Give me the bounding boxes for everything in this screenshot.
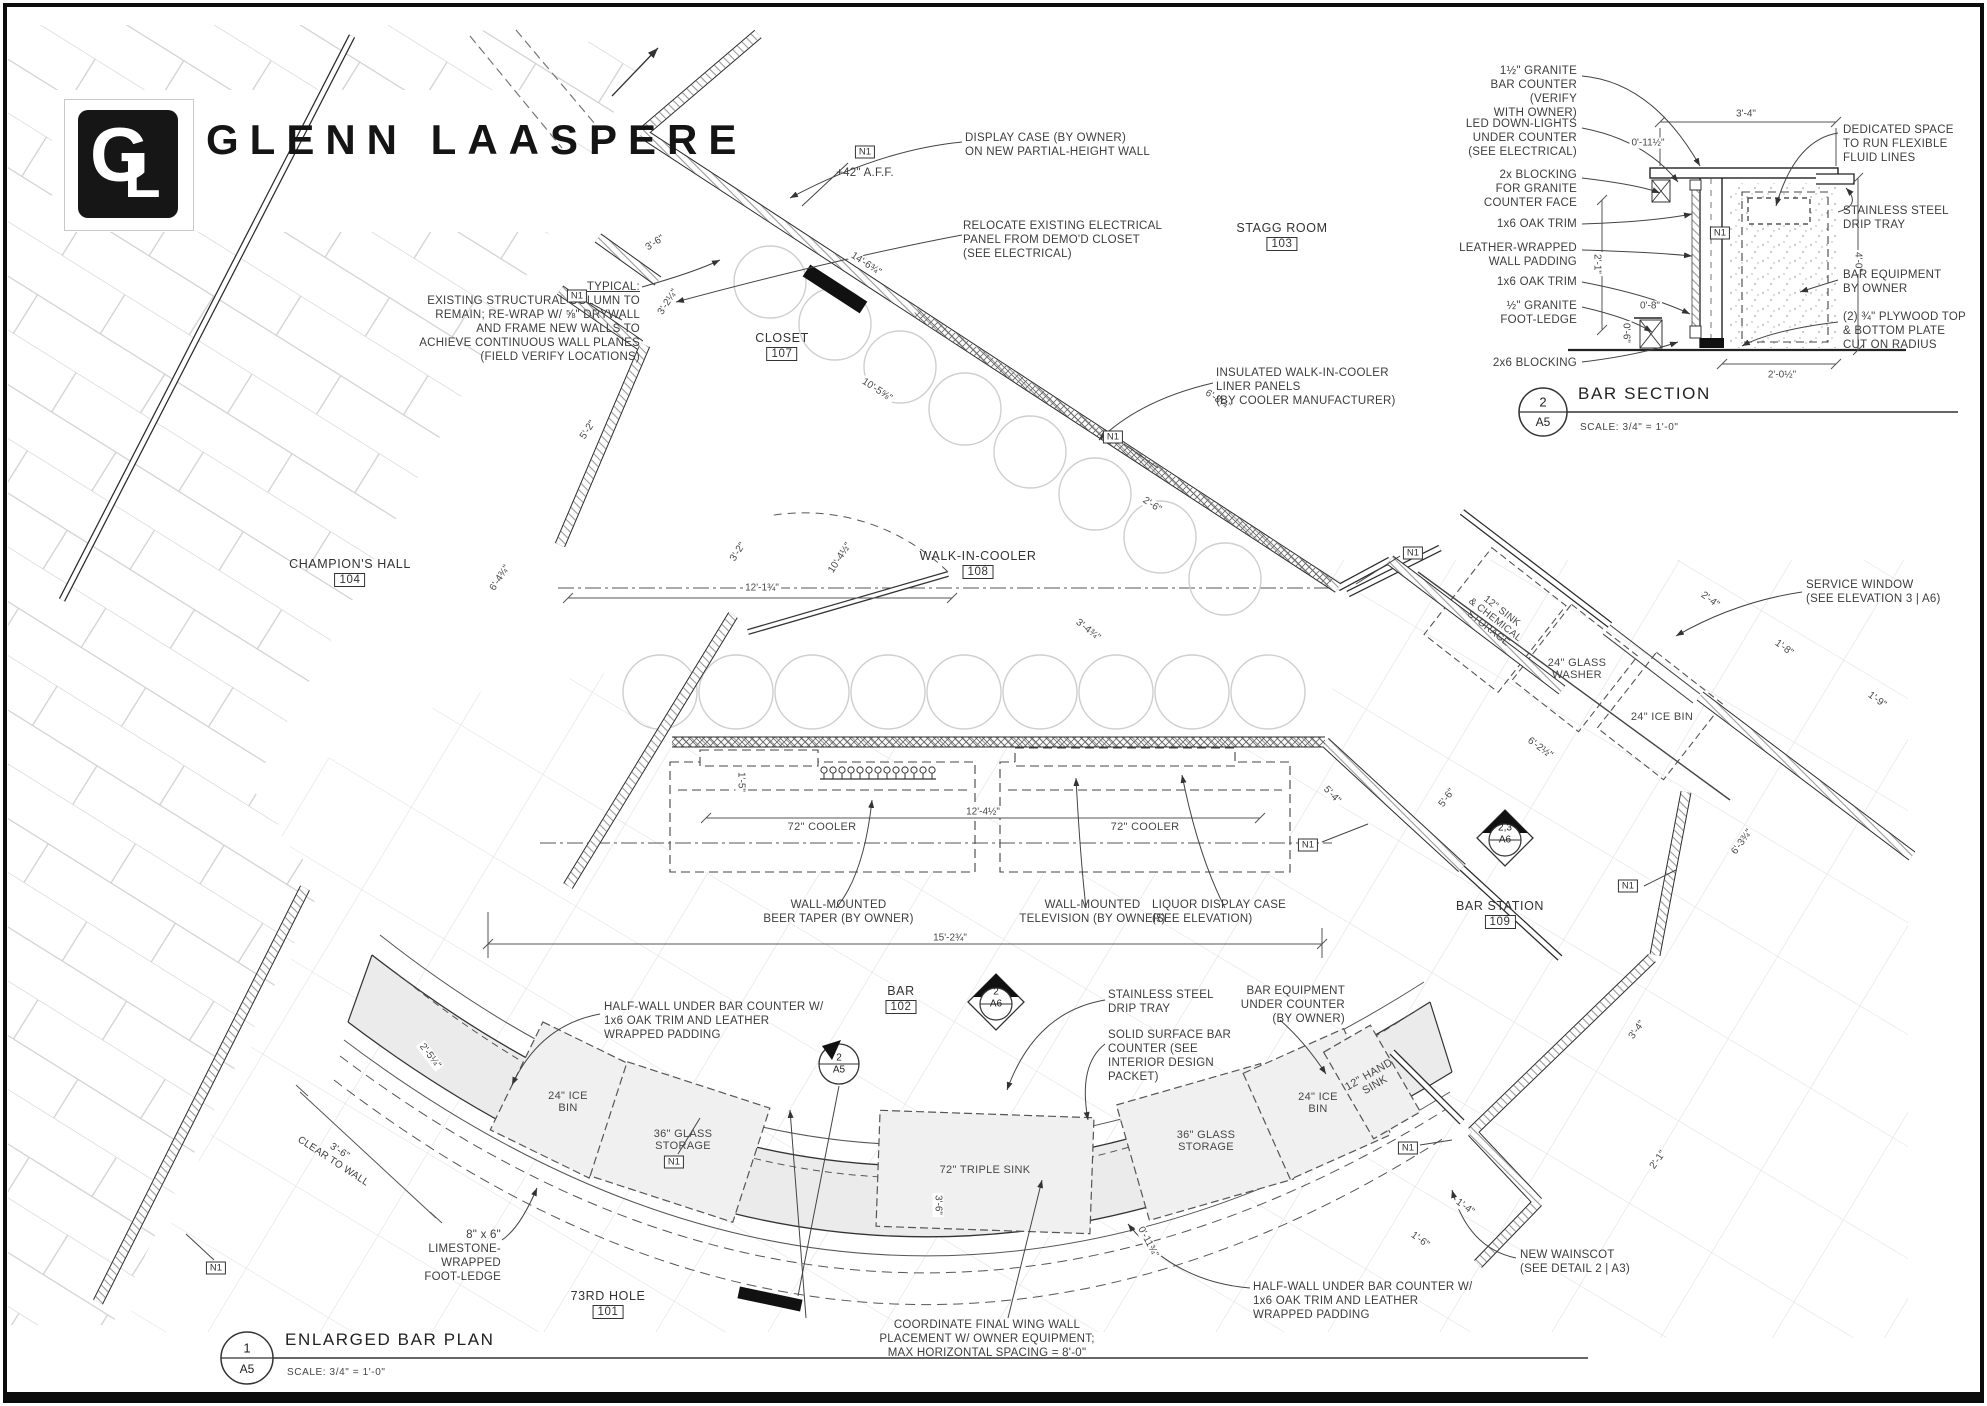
room-name: CHAMPION'S HALL bbox=[289, 557, 411, 571]
sect-callout-granite-counter: 1½" GRANITE BAR COUNTER (VERIFY WITH OWN… bbox=[1447, 64, 1577, 120]
section-scale: SCALE: 3/4" = 1'-0" bbox=[1580, 417, 1679, 433]
sect-dim: 0'-11½" bbox=[1629, 138, 1666, 149]
sheet-border-bottom bbox=[3, 1392, 1984, 1403]
room-label-hole: 73RD HOLE101 bbox=[571, 1289, 646, 1319]
detail-marker-text-23-a6: 2,3A6 bbox=[1498, 823, 1512, 846]
logo-letter-l: L bbox=[124, 142, 161, 211]
section-marker-sheet: A5 bbox=[1536, 415, 1551, 429]
room-number: 108 bbox=[962, 565, 993, 579]
keynote-n1: N1 bbox=[567, 290, 587, 303]
keynote-n1: N1 bbox=[664, 1156, 684, 1169]
dim: 12'-4½" bbox=[964, 807, 1002, 818]
dim: 3'-6" bbox=[933, 1193, 944, 1217]
sect-callout-blocking: 2x BLOCKING FOR GRANITE COUNTER FACE bbox=[1447, 168, 1577, 210]
keynote-n1: N1 bbox=[1298, 839, 1318, 852]
marker-sheet: A5 bbox=[833, 1064, 845, 1075]
room-name: 73RD HOLE bbox=[571, 1289, 646, 1303]
note-relocate-panel: RELOCATE EXISTING ELECTRICAL PANEL FROM … bbox=[963, 219, 1162, 261]
firm-logo: G L bbox=[78, 110, 178, 218]
keynote-n1: N1 bbox=[1103, 431, 1123, 444]
marker-num: 2 bbox=[836, 1053, 842, 1064]
keynote-n1: N1 bbox=[206, 1262, 226, 1275]
section-scale-text: SCALE: 3/4" = 1'-0" bbox=[1580, 422, 1679, 433]
keynote-n1: N1 bbox=[1618, 880, 1638, 893]
sect-callout-leather: LEATHER-WRAPPED WALL PADDING bbox=[1447, 241, 1577, 269]
note-bar-equipment: BAR EQUIPMENT UNDER COUNTER (BY OWNER) bbox=[1213, 984, 1345, 1026]
plan-drawing bbox=[0, 0, 1987, 1406]
section-title: BAR SECTION bbox=[1578, 384, 1711, 404]
marker-sheet: A6 bbox=[990, 998, 1002, 1009]
room-number: 102 bbox=[886, 1000, 917, 1014]
room-label-bar: BAR102 bbox=[886, 984, 917, 1014]
keynote-n1-section: N1 bbox=[1710, 227, 1730, 240]
room-label-station: BAR STATION109 bbox=[1456, 899, 1544, 929]
plan-title: ENLARGED BAR PLAN bbox=[285, 1330, 495, 1350]
room-number: 103 bbox=[1267, 237, 1298, 251]
note-aff: +42" A.F.F. bbox=[836, 166, 894, 180]
note-display-case: DISPLAY CASE (BY OWNER) ON NEW PARTIAL-H… bbox=[965, 131, 1150, 159]
equip-glass-washer: 24" GLASS WASHER bbox=[1548, 657, 1607, 681]
drawing-sheet: G L GLENN LAASPERE STAGG ROOM103 CHAMPIO… bbox=[0, 0, 1987, 1406]
equip-glass-storage-left: 36" GLASS STORAGE bbox=[654, 1128, 713, 1152]
sect-dim: 0'-6" bbox=[1621, 321, 1632, 345]
room-name: CLOSET bbox=[755, 331, 809, 345]
sect-callout-oak-trim-top: 1x6 OAK TRIM bbox=[1447, 217, 1577, 231]
sect-callout-oak-trim-bottom: 1x6 OAK TRIM bbox=[1447, 275, 1577, 289]
room-label-stagg: STAGG ROOM103 bbox=[1236, 221, 1327, 251]
note-service-window: SERVICE WINDOW (SEE ELEVATION 3 | A6) bbox=[1806, 578, 1941, 606]
room-name: BAR bbox=[887, 984, 915, 998]
equip-ice-bin-left: 24" ICE BIN bbox=[548, 1090, 588, 1114]
note-half-wall-bottom: HALF-WALL UNDER BAR COUNTER W/ 1x6 OAK T… bbox=[1253, 1280, 1472, 1322]
sect-callout-drip-tray: STAINLESS STEEL DRIP TRAY bbox=[1843, 204, 1949, 232]
marker-sheet: A6 bbox=[1499, 834, 1511, 845]
cooler-floor bbox=[555, 130, 1340, 748]
note-liquor-case: LIQUOR DISPLAY CASE (SEE ELEVATION) bbox=[1152, 898, 1286, 926]
sect-dim: 3'-4" bbox=[1734, 109, 1758, 120]
note-wainscot: NEW WAINSCOT (SEE DETAIL 2 | A3) bbox=[1520, 1248, 1630, 1276]
note-beer-taper: WALL-MOUNTED BEER TAPER (BY OWNER) bbox=[756, 898, 921, 926]
dim: 12'-1¾" bbox=[743, 583, 781, 594]
equip-cooler72-right: 72" COOLER bbox=[1111, 821, 1180, 833]
plan-scale: SCALE: 3/4" = 1'-0" bbox=[287, 1362, 386, 1378]
sect-callout-bar-equip: BAR EQUIPMENT BY OWNER bbox=[1843, 268, 1941, 296]
room-label-champions: CHAMPION'S HALL104 bbox=[289, 557, 411, 587]
sect-dim: 2'-0½" bbox=[1766, 370, 1798, 381]
room-number: 107 bbox=[767, 347, 798, 361]
note-wing-wall: COORDINATE FINAL WING WALL PLACEMENT W/ … bbox=[852, 1318, 1122, 1360]
note-drip-tray: STAINLESS STEEL DRIP TRAY bbox=[1108, 988, 1214, 1016]
dim: 15'-2¾" bbox=[931, 933, 969, 944]
plan-scale-text: SCALE: 3/4" = 1'-0" bbox=[287, 1367, 386, 1378]
note-limestone-ledge: 8" x 6" LIMESTONE-WRAPPED FOOT-LEDGE bbox=[386, 1228, 501, 1284]
note-typical-body: EXISTING STRUCTURAL COLUMN TO REMAIN; RE… bbox=[419, 295, 640, 363]
note-insulated-liner: INSULATED WALK-IN-COOLER LINER PANELS (B… bbox=[1216, 366, 1396, 408]
room-number: 101 bbox=[593, 1305, 624, 1319]
sect-callout-plywood: (2) ¾" PLYWOOD TOP & BOTTOM PLATE CUT ON… bbox=[1843, 310, 1966, 352]
section-title-text: BAR SECTION bbox=[1578, 384, 1711, 404]
keynote-n1: N1 bbox=[1398, 1142, 1418, 1155]
keynote-n1: N1 bbox=[855, 146, 875, 159]
equip-ice-bin-ne: 24" ICE BIN bbox=[1631, 711, 1693, 723]
equip-ice-bin-right: 24" ICE BIN bbox=[1298, 1091, 1338, 1115]
marker-num: 2,3 bbox=[1498, 823, 1512, 834]
marker-num: 2 bbox=[993, 987, 999, 998]
note-typical-head: TYPICAL: bbox=[587, 281, 640, 293]
sect-dim: 0'-8" bbox=[1638, 301, 1662, 312]
keynote-n1: N1 bbox=[1403, 547, 1423, 560]
room-name: WALK-IN-COOLER bbox=[920, 549, 1037, 563]
note-television: WALL-MOUNTED TELEVISION (BY OWNER) bbox=[1010, 898, 1175, 926]
note-solid-surface: SOLID SURFACE BAR COUNTER (SEE INTERIOR … bbox=[1108, 1028, 1231, 1084]
sect-callout-2x6-blocking: 2x6 BLOCKING bbox=[1447, 356, 1577, 370]
detail-marker-text-2-a6: 2A6 bbox=[990, 987, 1002, 1010]
sect-callout-led: LED DOWN-LIGHTS UNDER COUNTER (SEE ELECT… bbox=[1447, 117, 1577, 159]
sect-dim: 2'-1" bbox=[1592, 252, 1603, 276]
room-label-closet: CLOSET107 bbox=[755, 331, 809, 361]
room-name: BAR STATION bbox=[1456, 899, 1544, 913]
room-name: STAGG ROOM bbox=[1236, 221, 1327, 235]
note-typical: TYPICAL:EXISTING STRUCTURAL COLUMN TO RE… bbox=[390, 280, 640, 364]
room-number: 109 bbox=[1485, 915, 1516, 929]
firm-name: GLENN LAASPERE bbox=[206, 116, 747, 164]
note-half-wall-top: HALF-WALL UNDER BAR COUNTER W/ 1x6 OAK T… bbox=[604, 1000, 823, 1042]
plan-marker-sheet: A5 bbox=[240, 1362, 255, 1376]
equip-glass-storage-right: 36" GLASS STORAGE bbox=[1177, 1129, 1236, 1153]
dim: 1'-5" bbox=[736, 770, 747, 794]
equip-cooler72-left: 72" COOLER bbox=[788, 821, 857, 833]
room-label-cooler: WALK-IN-COOLER108 bbox=[920, 549, 1037, 579]
section-marker-number: 2 bbox=[1539, 395, 1546, 410]
room-number: 104 bbox=[335, 573, 366, 587]
plan-title-text: ENLARGED BAR PLAN bbox=[285, 1330, 495, 1350]
equip-triple-sink: 72" TRIPLE SINK bbox=[940, 1164, 1031, 1176]
sect-callout-granite-ledge: ½" GRANITE FOOT-LEDGE bbox=[1447, 299, 1577, 327]
section-cut-text-2-a5: 2A5 bbox=[833, 1053, 845, 1076]
plan-marker-number: 1 bbox=[243, 1341, 250, 1356]
sect-callout-fluid-lines: DEDICATED SPACE TO RUN FLEXIBLE FLUID LI… bbox=[1843, 123, 1954, 165]
